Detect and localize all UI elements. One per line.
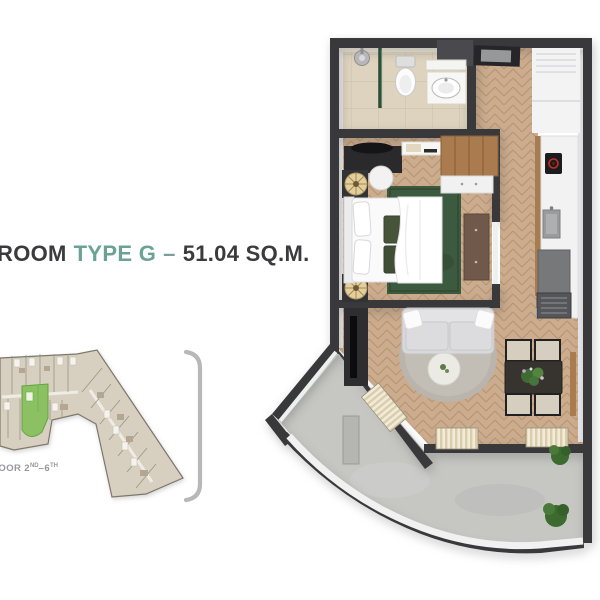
wardrobe xyxy=(441,136,498,193)
sink-vanity xyxy=(426,60,466,104)
ac-unit xyxy=(343,416,359,464)
desk-chair xyxy=(369,166,393,190)
bedroom-door xyxy=(493,222,498,284)
blind xyxy=(436,428,478,449)
dining-chair xyxy=(506,394,531,415)
highlighted-unit-bed xyxy=(26,392,33,401)
floorplan-render xyxy=(0,0,600,600)
dining-chair xyxy=(506,340,531,361)
tv xyxy=(350,316,357,378)
wardrobe-cabinet xyxy=(441,176,493,193)
cooktop xyxy=(545,153,562,174)
floor-range-label: FLOOR 2ND–6TH xyxy=(0,463,58,474)
dining-chair xyxy=(535,340,560,361)
duvet xyxy=(395,197,442,283)
building-minimap xyxy=(0,350,183,497)
sofa-pillow xyxy=(474,309,495,330)
blind xyxy=(526,428,568,447)
sofa-pillow xyxy=(402,309,423,330)
range-bracket xyxy=(186,352,200,500)
sofa xyxy=(402,308,495,354)
coffee-table xyxy=(428,353,460,385)
entry-closet xyxy=(532,48,580,133)
kitchen-sink xyxy=(543,206,560,238)
title-separator: – xyxy=(163,241,176,266)
toilet xyxy=(396,56,416,96)
bed xyxy=(344,197,442,283)
fridge xyxy=(537,293,571,318)
balcony-door-frame xyxy=(570,352,576,416)
page-title: ROOMTYPE G–51.04 SQ.M. xyxy=(0,241,310,267)
dresser xyxy=(464,214,489,280)
appliance-cabinet xyxy=(538,250,570,293)
dining-chair xyxy=(535,394,560,415)
title-area: 51.04 SQ.M. xyxy=(183,241,310,266)
title-room: ROOM xyxy=(0,241,67,266)
title-type: TYPE G xyxy=(74,241,157,266)
kitchen xyxy=(532,48,580,318)
corridor-floor xyxy=(500,129,538,308)
nightstand xyxy=(342,170,368,198)
door-mat xyxy=(481,49,511,62)
tv-console xyxy=(344,308,368,386)
floorplan-page: ROOMTYPE G–51.04 SQ.M. FLOOR 2ND–6TH xyxy=(0,0,600,600)
unit-plan xyxy=(265,38,592,553)
